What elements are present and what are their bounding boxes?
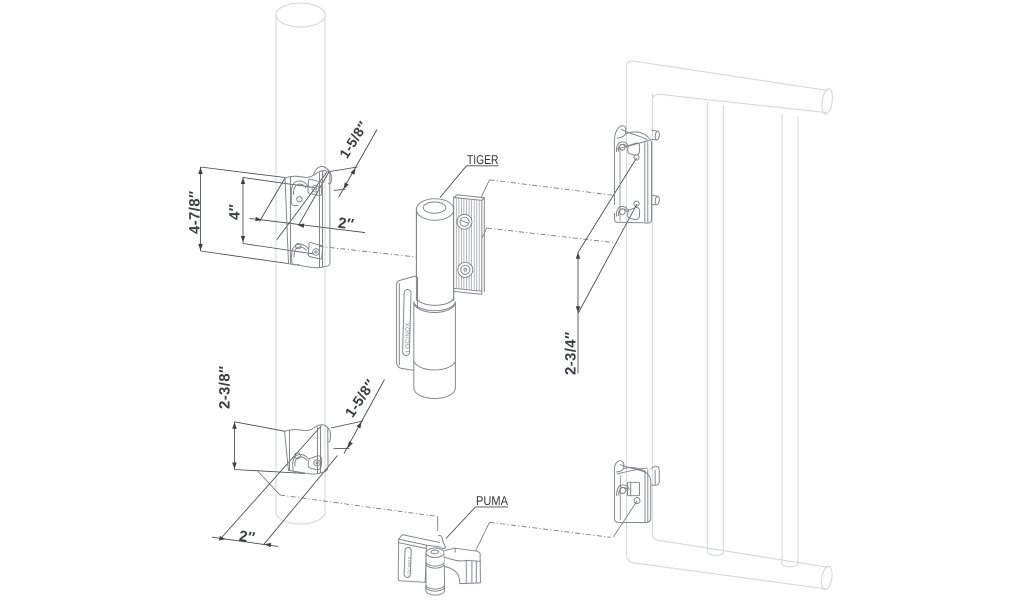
svg-text:2″: 2″: [337, 215, 355, 234]
svg-text:2-3/8″: 2-3/8″: [217, 366, 234, 409]
svg-text:2″: 2″: [238, 528, 256, 547]
svg-text:PUMA: PUMA: [476, 493, 508, 508]
svg-text:2-3/4″: 2-3/4″: [563, 332, 580, 375]
svg-text:TIGER: TIGER: [467, 152, 499, 167]
svg-text:4-7/8″: 4-7/8″: [187, 191, 204, 234]
svg-text:LOCINOX: LOCINOX: [406, 556, 412, 576]
svg-text:LOCINOX: LOCINOX: [405, 322, 412, 352]
svg-text:4″: 4″: [227, 204, 244, 220]
